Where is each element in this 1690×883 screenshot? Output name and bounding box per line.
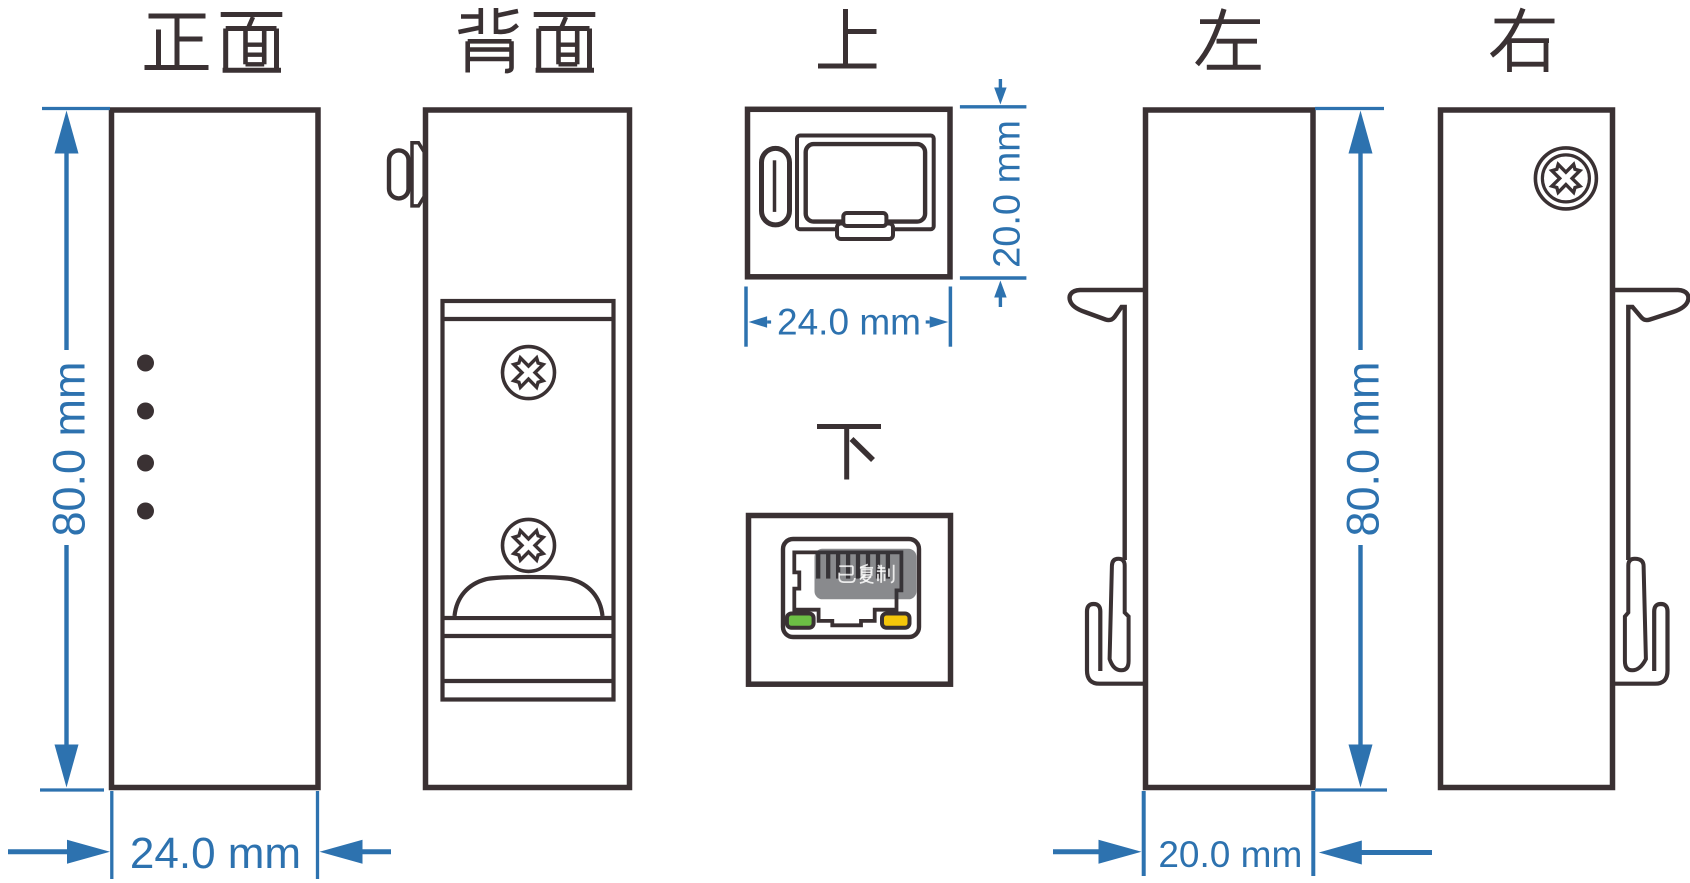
svg-text:20.0 mm: 20.0 mm	[987, 120, 1029, 268]
svg-text:24.0 mm: 24.0 mm	[777, 302, 921, 343]
svg-text:20.0 mm: 20.0 mm	[1158, 834, 1302, 875]
svg-text:80.0 mm: 80.0 mm	[1338, 361, 1389, 536]
svg-text:24.0 mm: 24.0 mm	[130, 829, 301, 878]
svg-text:80.0 mm: 80.0 mm	[44, 361, 95, 536]
